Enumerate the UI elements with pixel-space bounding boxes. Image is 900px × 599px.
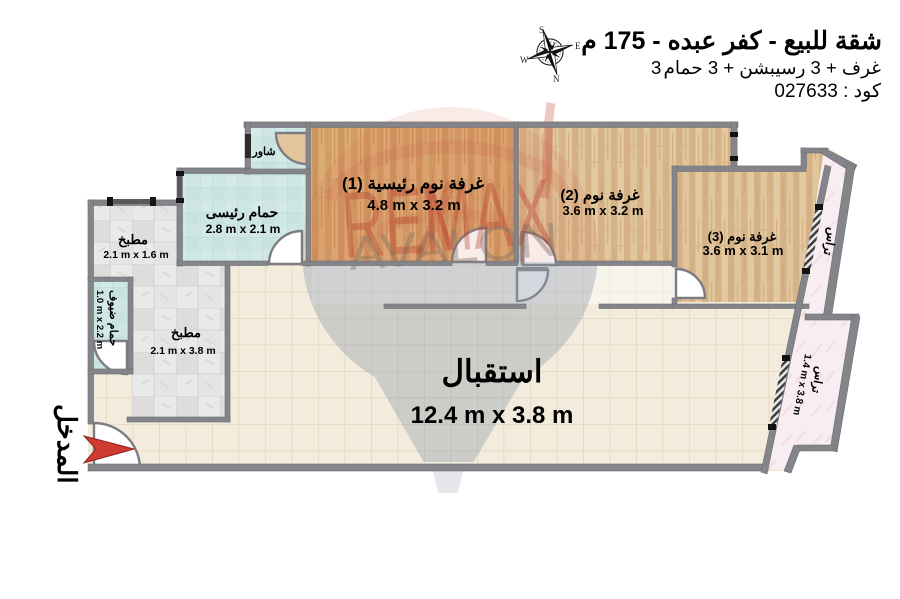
svg-text:المدخل: المدخل <box>52 404 82 484</box>
svg-text:2.1 m x 1.6 m: 2.1 m x 1.6 m <box>103 249 168 261</box>
svg-text:S: S <box>539 25 544 35</box>
svg-text:3.6 m x 3.1 m: 3.6 m x 3.1 m <box>703 243 784 258</box>
svg-text:E: E <box>575 41 581 51</box>
svg-text:مطبخ: مطبخ <box>118 232 148 248</box>
svg-text:1.0 m x 2.2 m: 1.0 m x 2.2 m <box>94 290 105 349</box>
svg-text:استقبال: استقبال <box>442 354 543 389</box>
svg-text:شاور: شاور <box>251 146 275 158</box>
svg-text:W: W <box>520 55 529 65</box>
svg-text:N: N <box>553 74 560 84</box>
svg-text:2.8 m x 2.1 m: 2.8 m x 2.1 m <box>206 222 281 236</box>
svg-text:حمام رئيسى: حمام رئيسى <box>206 204 279 221</box>
svg-text:غرف + 3 رسيبشن + 3 حمام: غرف + 3 رسيبشن + 3 حمام <box>663 57 881 79</box>
svg-text:كود : 027633: كود : 027633 <box>774 81 882 102</box>
svg-text:مطبخ: مطبخ <box>171 325 201 341</box>
svg-text:حمام ضيوف: حمام ضيوف <box>107 290 119 346</box>
svg-text:غرفة نوم رئيسية (1): غرفة نوم رئيسية (1) <box>342 174 484 194</box>
svg-text:غرفة نوم (2): غرفة نوم (2) <box>560 187 639 204</box>
svg-text:شقة للبيع - كفر عبده - 175 م: شقة للبيع - كفر عبده - 175 م <box>581 27 882 56</box>
svg-text:3: 3 <box>651 57 661 78</box>
svg-text:4.8 m x 3.2 m: 4.8 m x 3.2 m <box>367 197 460 214</box>
svg-text:3.6 m x 3.2 m: 3.6 m x 3.2 m <box>563 203 644 218</box>
svg-text:12.4 m x 3.8 m: 12.4 m x 3.8 m <box>411 402 574 429</box>
svg-text:2.1 m x 3.8 m: 2.1 m x 3.8 m <box>150 345 215 357</box>
